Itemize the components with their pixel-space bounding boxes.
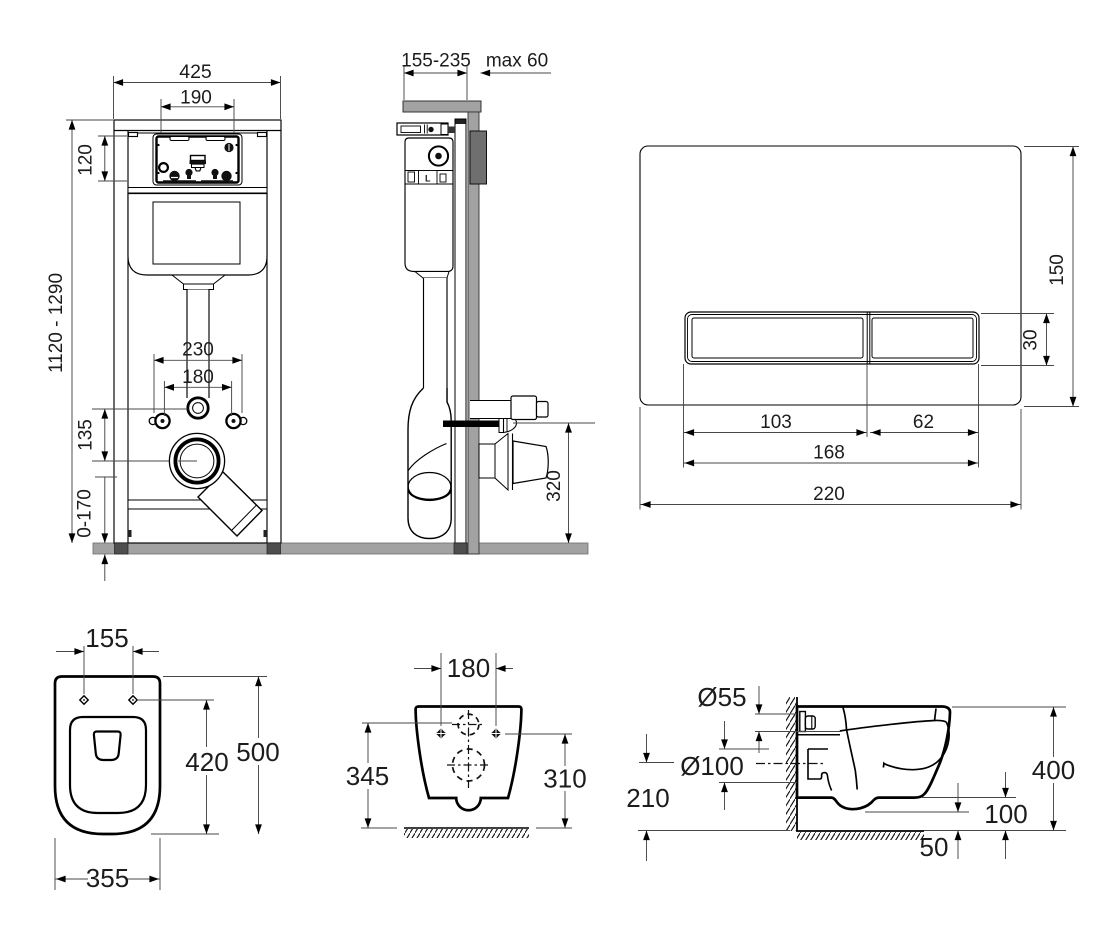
svg-text:400: 400 bbox=[1032, 755, 1075, 785]
svg-text:420: 420 bbox=[185, 747, 228, 777]
svg-text:310: 310 bbox=[543, 764, 586, 794]
svg-text:135: 135 bbox=[76, 419, 97, 451]
svg-text:100: 100 bbox=[984, 799, 1027, 829]
svg-text:220: 220 bbox=[813, 484, 845, 505]
svg-text:345: 345 bbox=[346, 761, 389, 791]
svg-text:210: 210 bbox=[626, 783, 669, 813]
svg-text:max 60: max 60 bbox=[486, 51, 548, 72]
svg-text:320: 320 bbox=[544, 470, 565, 502]
svg-text:425: 425 bbox=[179, 61, 212, 83]
svg-text:180: 180 bbox=[447, 653, 490, 683]
svg-text:120: 120 bbox=[76, 144, 97, 176]
svg-text:355: 355 bbox=[86, 863, 129, 893]
svg-text:155: 155 bbox=[85, 623, 128, 653]
svg-text:500: 500 bbox=[236, 737, 279, 767]
svg-text:103: 103 bbox=[760, 412, 792, 433]
svg-text:Ø55: Ø55 bbox=[697, 682, 746, 712]
svg-text:0-170: 0-170 bbox=[75, 489, 96, 538]
svg-text:Ø100: Ø100 bbox=[680, 751, 744, 781]
svg-text:L: L bbox=[425, 174, 431, 184]
svg-text:190: 190 bbox=[180, 88, 212, 109]
svg-text:180: 180 bbox=[182, 367, 214, 388]
svg-text:62: 62 bbox=[913, 412, 934, 433]
svg-text:230: 230 bbox=[182, 340, 214, 361]
svg-text:50: 50 bbox=[920, 832, 949, 862]
svg-text:30: 30 bbox=[1021, 329, 1042, 350]
svg-text:168: 168 bbox=[813, 443, 845, 464]
svg-text:1120 - 1290: 1120 - 1290 bbox=[46, 273, 67, 373]
svg-text:150: 150 bbox=[1047, 254, 1068, 286]
svg-text:155-235: 155-235 bbox=[401, 51, 471, 72]
